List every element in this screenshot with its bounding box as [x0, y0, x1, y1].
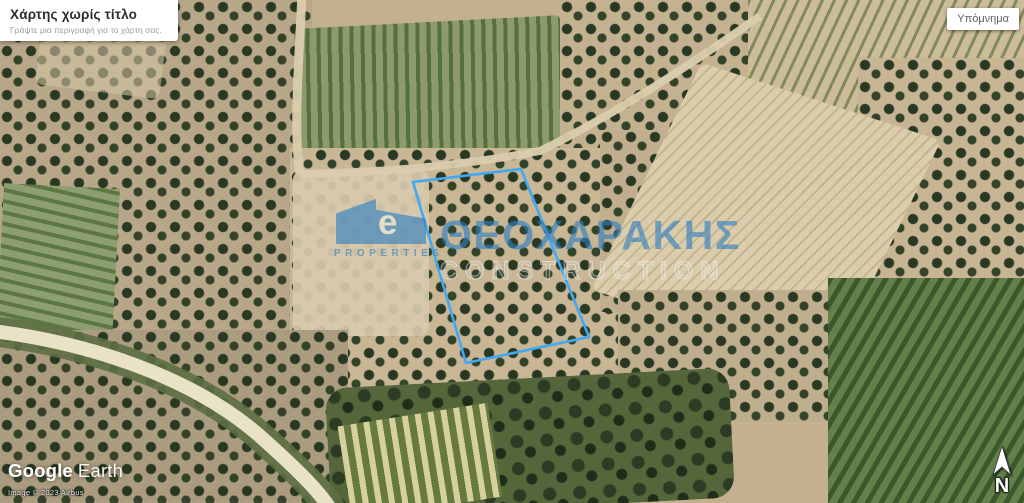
google-earth-logo: GoogleEarth	[8, 460, 123, 482]
parcel-layer	[0, 0, 1024, 503]
map-viewport[interactable]: e PROPERTIES ΘΕΟΧΑΡΑΚΗΣ CONSTRUCTION Χάρ…	[0, 0, 1024, 503]
legend-button[interactable]: Υπόμνημα	[947, 8, 1019, 30]
north-compass: N	[987, 445, 1017, 495]
google-logo-text: Google	[8, 460, 73, 481]
north-arrow-icon	[990, 445, 1014, 477]
earth-logo-text: Earth	[78, 460, 123, 481]
map-title: Χάρτης χωρίς τίτλο	[10, 7, 168, 22]
north-label: N	[987, 477, 1017, 495]
parcel-outline[interactable]	[413, 169, 589, 363]
imagery-attribution: Image © 2023 Airbus	[8, 488, 84, 497]
map-subtitle: Γράψτε μια περιγραφή για το χάρτη σας.	[10, 25, 168, 35]
map-title-card[interactable]: Χάρτης χωρίς τίτλο Γράψτε μια περιγραφή …	[0, 0, 178, 41]
